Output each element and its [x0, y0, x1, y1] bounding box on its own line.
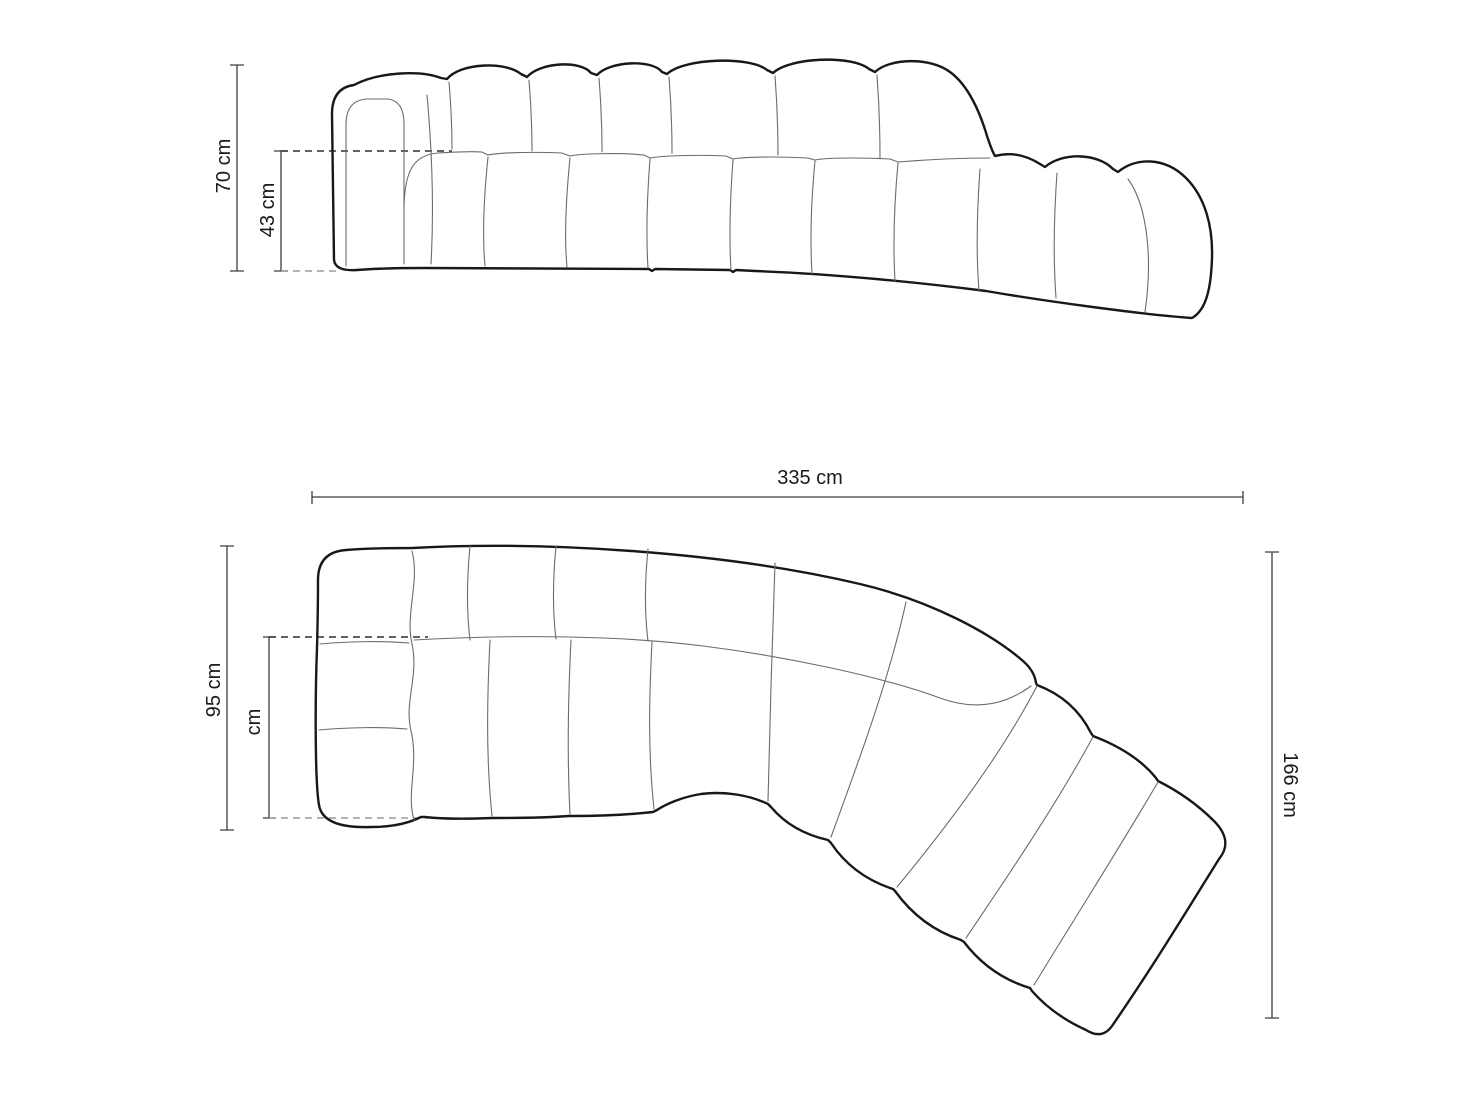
- side-sofa-outline: [332, 60, 1212, 318]
- side-chaise-end-inner-line: [1128, 179, 1148, 312]
- plan-depth-label: 95 cm: [203, 663, 225, 717]
- plan-seat-cushion-separators: [488, 640, 654, 816]
- side-armrest-back-edge: [427, 95, 432, 264]
- plan-sofa-outline: [316, 546, 1226, 1034]
- side-armrest-inner-line: [346, 99, 404, 266]
- side-seat-height-label: 43 cm: [257, 183, 279, 237]
- plan-sofa-silhouette: [316, 546, 1226, 1034]
- side-view: 70 cm 43 cm: [213, 60, 1212, 318]
- plan-sofa-detail-lines: [319, 546, 1158, 985]
- plan-back-seat-divider: [414, 637, 1031, 705]
- dim-line-chaise-depth: [1265, 552, 1279, 1018]
- side-sofa-silhouette: [332, 60, 1212, 318]
- plan-dimension-lines: [220, 491, 1279, 1018]
- dim-line-overall-width: [312, 491, 1243, 504]
- plan-curved-module-separators: [768, 563, 1158, 985]
- side-sofa-detail-lines: [346, 75, 1148, 312]
- plan-armrest-dividers: [319, 642, 409, 730]
- plan-overall-width-label: 335 cm: [777, 467, 843, 489]
- plan-view: 335 cm 95 cm cm 166 cm: [203, 467, 1301, 1034]
- side-chaise-separators: [977, 169, 1057, 298]
- plan-view-labels: 335 cm 95 cm cm 166 cm: [203, 467, 1301, 818]
- plan-seat-depth-label: cm: [243, 709, 265, 736]
- diagram-canvas: 70 cm 43 cm: [0, 0, 1460, 1095]
- side-seat-top-line: [404, 152, 990, 206]
- side-dimension-lines: [230, 65, 288, 271]
- side-back-cushion-separators: [449, 75, 880, 158]
- side-view-labels: 70 cm 43 cm: [213, 139, 279, 237]
- plan-armrest-right-edge: [409, 551, 414, 820]
- side-overall-height-label: 70 cm: [213, 139, 235, 193]
- side-seat-cushion-separators: [484, 157, 898, 281]
- sofa-dimension-diagram: 70 cm 43 cm: [0, 0, 1460, 1095]
- plan-chaise-depth-label: 166 cm: [1279, 752, 1301, 818]
- plan-back-cushion-separators: [467, 546, 648, 641]
